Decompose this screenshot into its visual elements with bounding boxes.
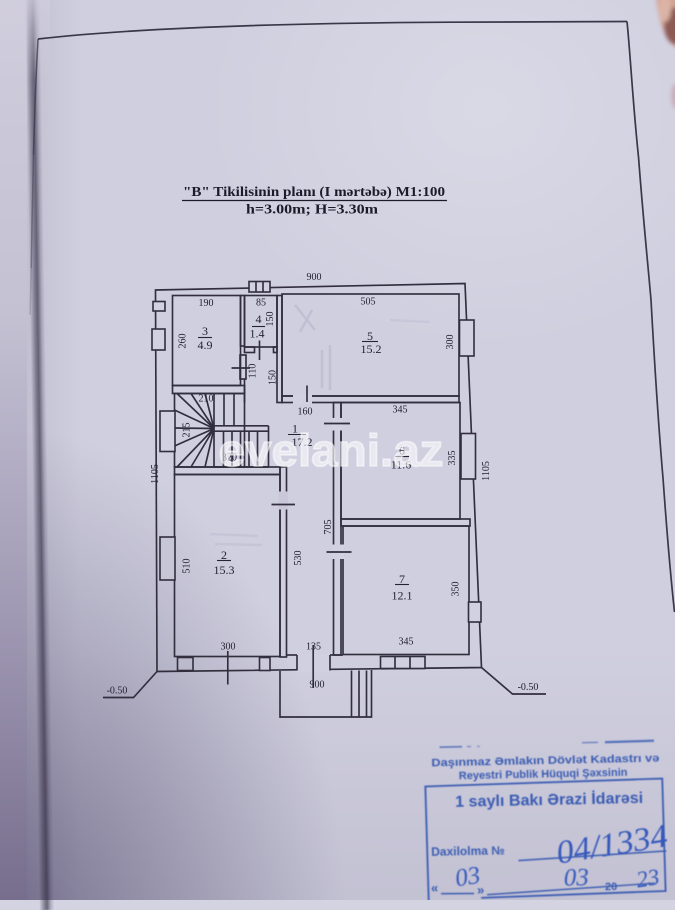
svg-text:900: 900 bbox=[310, 680, 325, 691]
svg-text:1105: 1105 bbox=[150, 464, 161, 484]
svg-text:505: 505 bbox=[361, 297, 376, 308]
svg-text:135: 135 bbox=[306, 642, 321, 653]
svg-text:-0.50: -0.50 bbox=[518, 682, 539, 693]
svg-text:215: 215 bbox=[182, 423, 193, 438]
svg-text:3: 3 bbox=[202, 324, 208, 338]
svg-text:1 saylı Bakı Ərazi İdarəsi: 1 saylı Bakı Ərazi İdarəsi bbox=[455, 789, 643, 811]
svg-text:15.3: 15.3 bbox=[214, 563, 235, 577]
svg-text:85: 85 bbox=[256, 298, 266, 309]
svg-text:705: 705 bbox=[323, 520, 334, 535]
svg-text:»: » bbox=[477, 882, 485, 897]
svg-text:5: 5 bbox=[367, 329, 373, 343]
svg-text:evelani.az: evelani.az bbox=[219, 425, 444, 476]
svg-text:1.4: 1.4 bbox=[250, 327, 265, 341]
svg-text:4: 4 bbox=[256, 312, 262, 326]
svg-text:150: 150 bbox=[268, 370, 279, 385]
svg-text:300: 300 bbox=[221, 642, 236, 653]
svg-text:900: 900 bbox=[307, 272, 322, 283]
svg-text:345: 345 bbox=[393, 405, 408, 416]
svg-text:23: 23 bbox=[634, 864, 661, 892]
svg-text:1105: 1105 bbox=[481, 461, 492, 481]
svg-text:4.9: 4.9 bbox=[198, 338, 213, 352]
svg-text:7: 7 bbox=[399, 572, 405, 586]
svg-text:510: 510 bbox=[182, 559, 193, 574]
svg-text:300: 300 bbox=[445, 335, 456, 350]
svg-text:Daxilolma №: Daxilolma № bbox=[431, 843, 505, 859]
svg-text:110: 110 bbox=[248, 364, 259, 379]
svg-text:350: 350 bbox=[451, 582, 462, 597]
svg-text:345: 345 bbox=[399, 637, 414, 648]
svg-text:150: 150 bbox=[265, 312, 276, 327]
svg-text:2: 2 bbox=[221, 548, 227, 562]
svg-text:«: « bbox=[431, 880, 439, 895]
svg-text:335: 335 bbox=[447, 451, 458, 466]
svg-text:15.2: 15.2 bbox=[361, 342, 382, 356]
svg-text:"B" Tikilisinin planı (I mərtə: "B" Tikilisinin planı (I mərtəbə) M1:100 bbox=[183, 185, 445, 200]
svg-text:-0.50: -0.50 bbox=[107, 686, 128, 697]
svg-text:190: 190 bbox=[199, 298, 214, 309]
svg-text:530: 530 bbox=[293, 551, 304, 566]
svg-text:260: 260 bbox=[178, 334, 189, 349]
svg-text:160: 160 bbox=[298, 407, 313, 418]
svg-text:210: 210 bbox=[199, 394, 214, 405]
svg-text:h=3.00m; H=3.30m: h=3.00m; H=3.30m bbox=[246, 203, 378, 218]
svg-text:12.1: 12.1 bbox=[392, 589, 413, 603]
